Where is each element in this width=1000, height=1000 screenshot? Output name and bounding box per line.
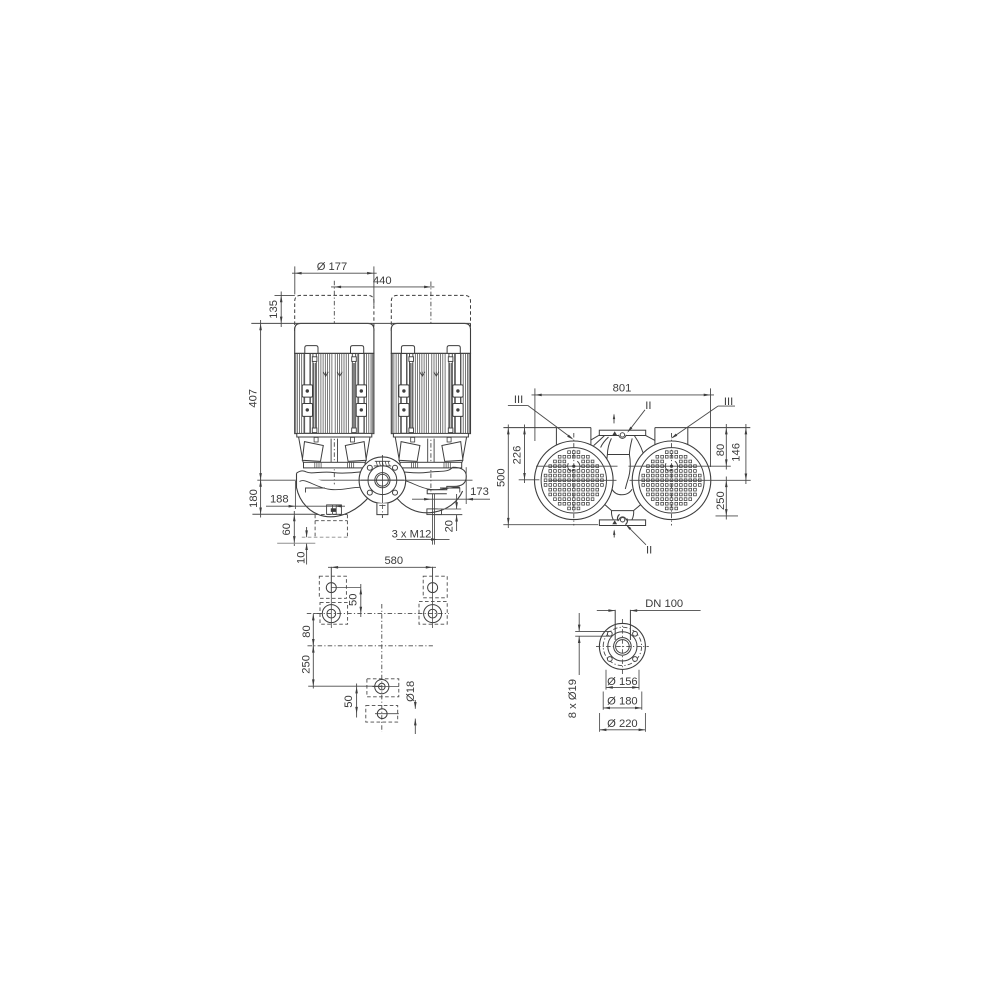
svg-text:II: II (645, 400, 651, 412)
svg-text:250: 250 (300, 655, 312, 674)
svg-text:801: 801 (613, 382, 632, 394)
svg-text:20: 20 (443, 520, 455, 532)
svg-text:Ø 177: Ø 177 (317, 261, 347, 273)
svg-text:440: 440 (373, 275, 392, 287)
svg-text:188: 188 (270, 494, 289, 506)
svg-text:80: 80 (301, 625, 313, 637)
svg-text:407: 407 (248, 389, 260, 408)
svg-text:146: 146 (731, 443, 743, 462)
svg-text:8 x Ø19: 8 x Ø19 (567, 679, 579, 718)
svg-text:60: 60 (281, 523, 293, 535)
svg-text:Ø 156: Ø 156 (607, 676, 637, 688)
svg-text:DN 100: DN 100 (645, 598, 683, 610)
svg-text:Ø 220: Ø 220 (607, 718, 637, 730)
svg-text:250: 250 (715, 491, 727, 510)
svg-text:50: 50 (343, 695, 355, 707)
svg-text:III: III (514, 394, 523, 406)
svg-text:135: 135 (268, 300, 280, 319)
svg-text:580: 580 (384, 555, 403, 567)
svg-text:50: 50 (347, 594, 359, 606)
svg-text:500: 500 (495, 468, 507, 487)
svg-text:80: 80 (715, 444, 727, 456)
svg-text:10: 10 (295, 551, 307, 563)
svg-text:II: II (646, 544, 652, 556)
svg-text:3 x M12: 3 x M12 (392, 529, 432, 541)
svg-text:Ø 180: Ø 180 (607, 695, 637, 707)
svg-text:226: 226 (512, 446, 524, 465)
svg-text:Ø18: Ø18 (405, 681, 417, 702)
svg-text:173: 173 (470, 486, 489, 498)
svg-text:180: 180 (248, 489, 260, 508)
